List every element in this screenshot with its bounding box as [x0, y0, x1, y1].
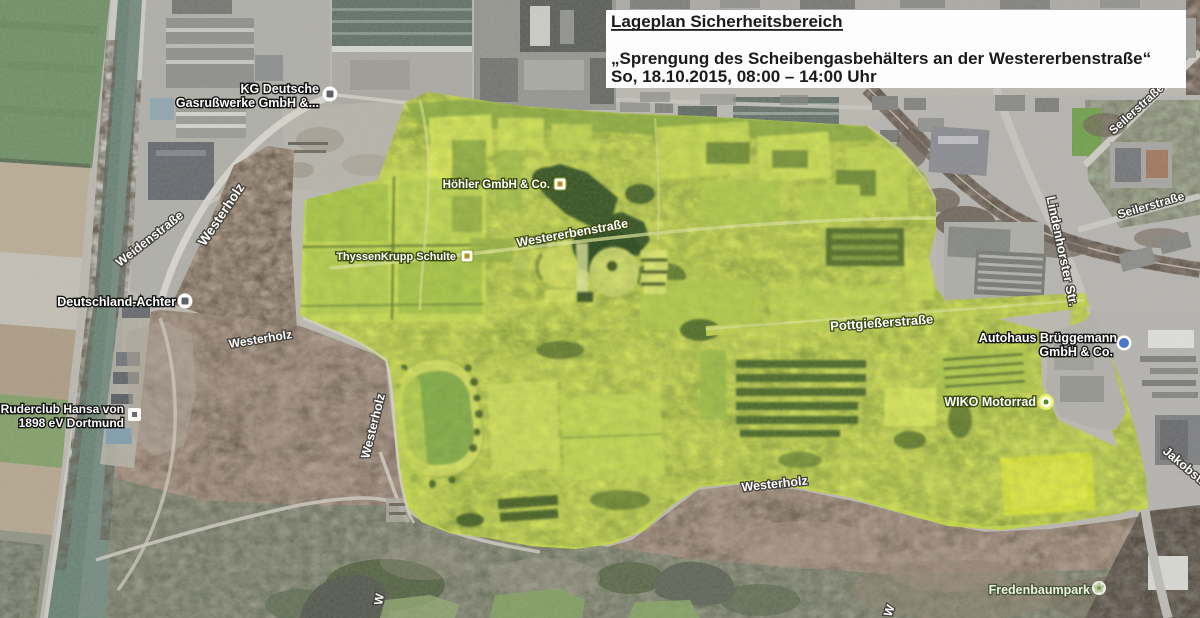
svg-text:Fredenbaumpark: Fredenbaumpark	[989, 583, 1090, 597]
svg-text:Gasrußwerke GmbH &...: Gasrußwerke GmbH &...	[176, 96, 319, 110]
svg-text:„Sprengung des Scheibengasbehä: „Sprengung des Scheibengasbehälters an d…	[611, 49, 1151, 68]
svg-text:Ruderclub Hansa von: Ruderclub Hansa von	[1, 402, 124, 416]
svg-text:ThyssenKrupp Schulte: ThyssenKrupp Schulte	[336, 251, 456, 263]
svg-text:KG Deutsche: KG Deutsche	[241, 82, 320, 96]
svg-text:Lageplan Sicherheitsbereich: Lageplan Sicherheitsbereich	[611, 12, 842, 31]
svg-text:WIKO Motorrad: WIKO Motorrad	[944, 395, 1036, 409]
svg-text:So, 18.10.2015, 08:00 – 14:00: So, 18.10.2015, 08:00 – 14:00 Uhr	[611, 67, 877, 86]
svg-text:Deutschland-Achter: Deutschland-Achter	[57, 295, 176, 309]
svg-text:Höhler GmbH & Co.: Höhler GmbH & Co.	[443, 179, 550, 191]
svg-text:Autohaus Brüggemann: Autohaus Brüggemann	[979, 331, 1117, 345]
svg-text:GmbH & Co.: GmbH & Co.	[1039, 345, 1113, 359]
svg-text:1898 eV Dortmund: 1898 eV Dortmund	[19, 416, 124, 430]
